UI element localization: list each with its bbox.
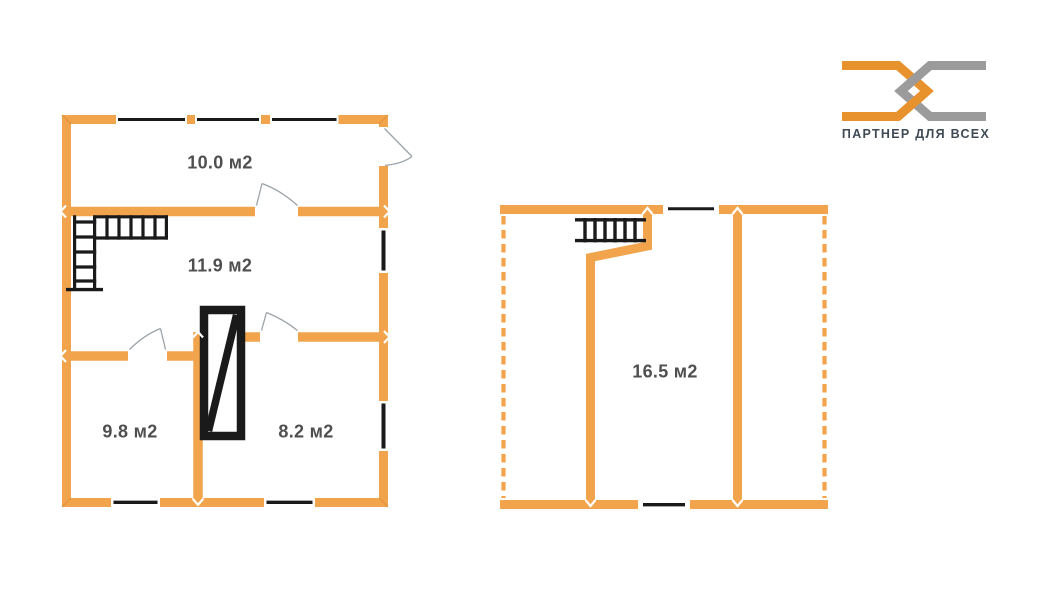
window-icon <box>195 115 261 125</box>
logo-gray-link <box>901 66 986 117</box>
door-swing-icon <box>260 313 298 343</box>
window-icon <box>378 228 388 273</box>
first-floor-plan <box>61 115 413 508</box>
staircase-icon <box>66 215 168 290</box>
window-icon <box>378 401 388 451</box>
door-swing-icon <box>378 127 412 166</box>
window-icon <box>111 498 160 508</box>
staircase-icon <box>575 218 646 242</box>
window-icon <box>264 498 315 508</box>
room-area-label-16-5: 16.5 м2 <box>632 362 697 383</box>
second-floor-plan <box>500 205 828 510</box>
company-logo-mark <box>842 66 986 117</box>
window-icon <box>638 500 690 510</box>
floorplan-page: 10.0 м2 11.9 м2 9.8 м2 8.2 м2 16.5 м2 ПА… <box>0 0 1050 600</box>
door-swing-icon <box>128 329 167 362</box>
stove-icon <box>204 310 241 436</box>
room-area-label-10-0: 10.0 м2 <box>187 153 252 174</box>
window-icon <box>663 205 719 215</box>
floorplan-drawing <box>0 0 1050 600</box>
window-icon <box>270 115 339 125</box>
door-swing-icon <box>255 184 298 217</box>
room-area-label-8-2: 8.2 м2 <box>278 422 333 443</box>
room-area-label-11-9: 11.9 м2 <box>188 256 252 277</box>
window-icon <box>116 115 187 125</box>
room-area-label-9-8: 9.8 м2 <box>102 422 157 443</box>
company-logo-caption: ПАРТНЕР ДЛЯ ВСЕХ <box>842 127 990 141</box>
logo-orange-link <box>842 66 927 117</box>
floor2-interior-wall-left <box>591 209 648 505</box>
